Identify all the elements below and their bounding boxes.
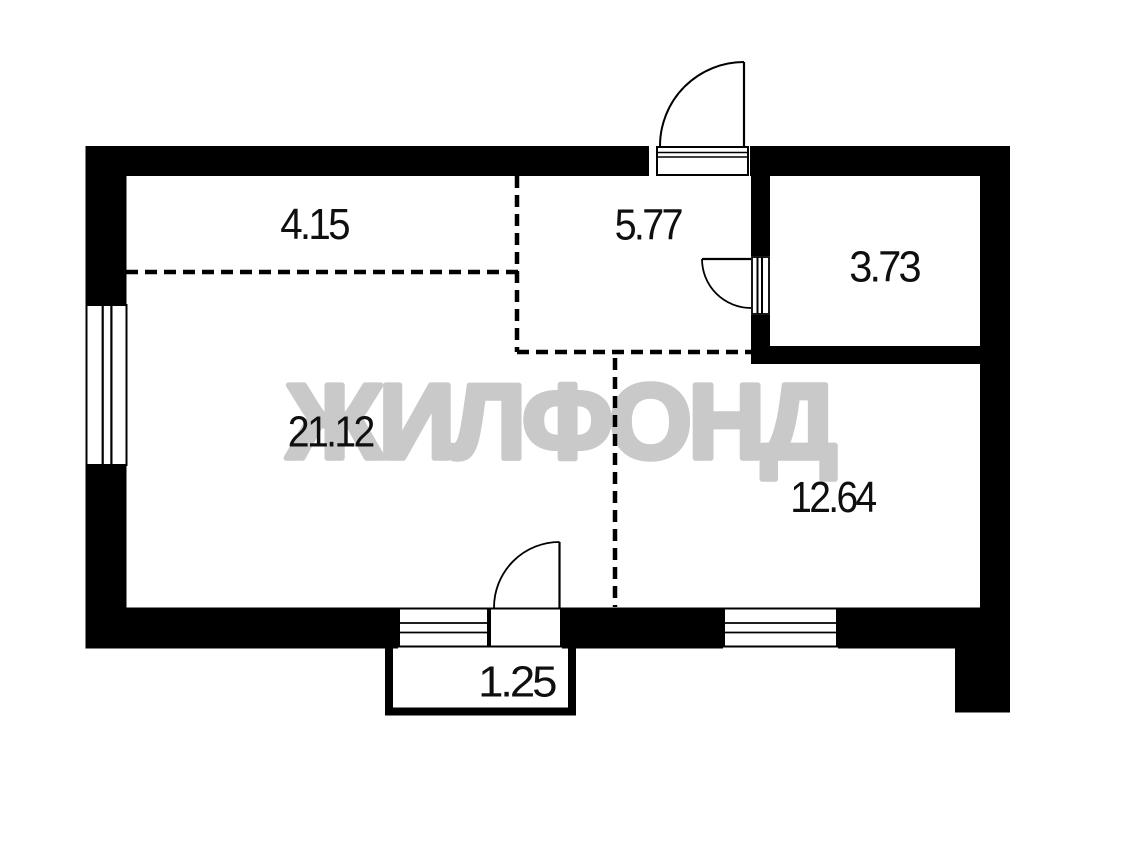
svg-text:4.15: 4.15: [280, 199, 349, 248]
svg-text:5.77: 5.77: [615, 200, 683, 249]
svg-text:1.25: 1.25: [478, 657, 556, 706]
svg-text:21.12: 21.12: [288, 406, 374, 456]
svg-text:12.64: 12.64: [790, 472, 876, 522]
svg-text:3.73: 3.73: [849, 243, 920, 292]
